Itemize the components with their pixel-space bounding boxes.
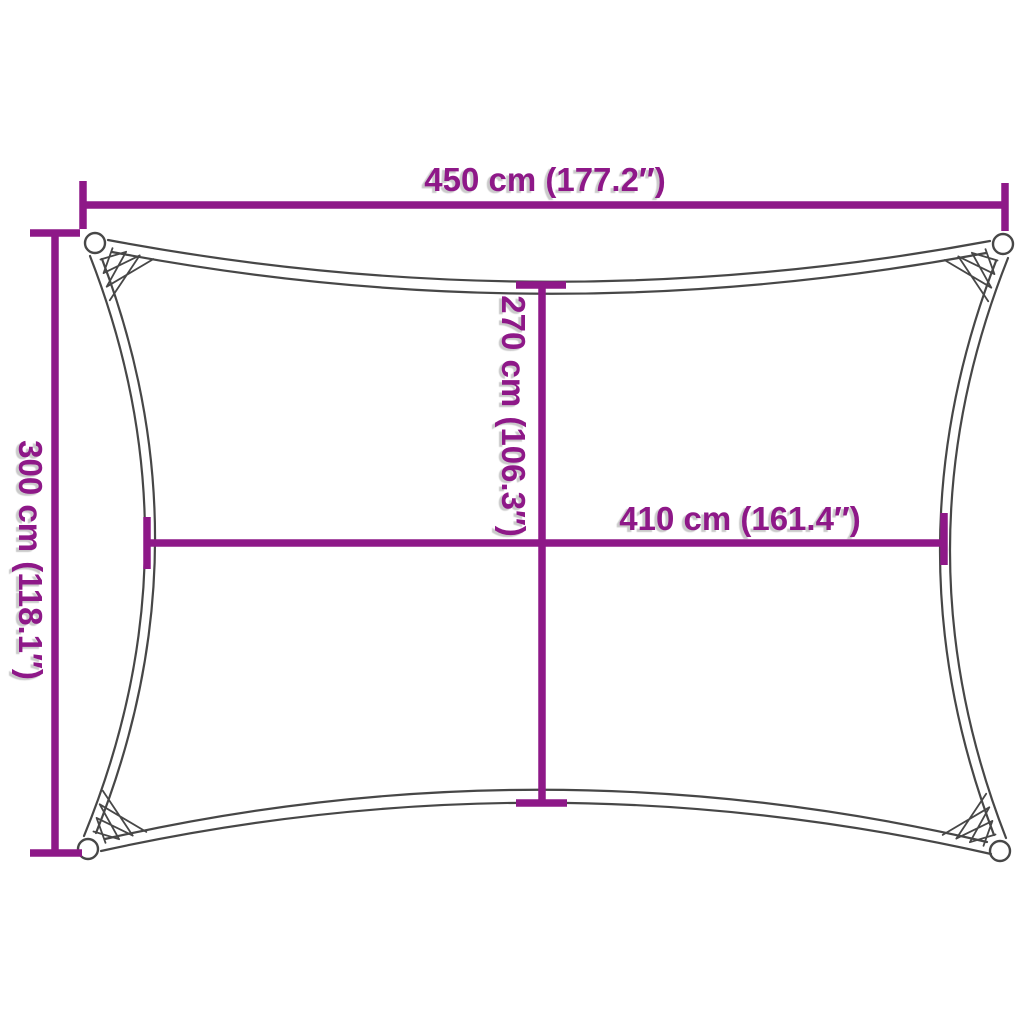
sail-edge-top-outer <box>108 240 990 282</box>
sail-edge-left-outer <box>84 256 145 836</box>
sail-edges <box>84 240 1008 854</box>
sail-edge-bottom-outer <box>101 803 991 854</box>
corner-loop-bottom-right <box>990 841 1010 861</box>
dimension-label-center-height: 270 cm (106.3″) <box>494 295 532 536</box>
dimension-label-left-height: 300 cm (118.1″) <box>11 440 49 680</box>
sail-edge-right-outer <box>950 258 1008 838</box>
sail-edge-bottom-inner <box>105 790 987 842</box>
sail-edge-right-inner <box>940 261 996 835</box>
product-dimension-diagram: 450 cm (177.2″) 300 cm (118.1″) 270 cm (… <box>0 0 1024 1024</box>
corner-loop-top-right <box>993 234 1013 254</box>
dimension-label-top-width: 450 cm (177.2″) <box>424 161 665 199</box>
dimension-label-center-width: 410 cm (161.4″) <box>619 500 860 538</box>
corner-loop-top-left <box>85 233 105 253</box>
